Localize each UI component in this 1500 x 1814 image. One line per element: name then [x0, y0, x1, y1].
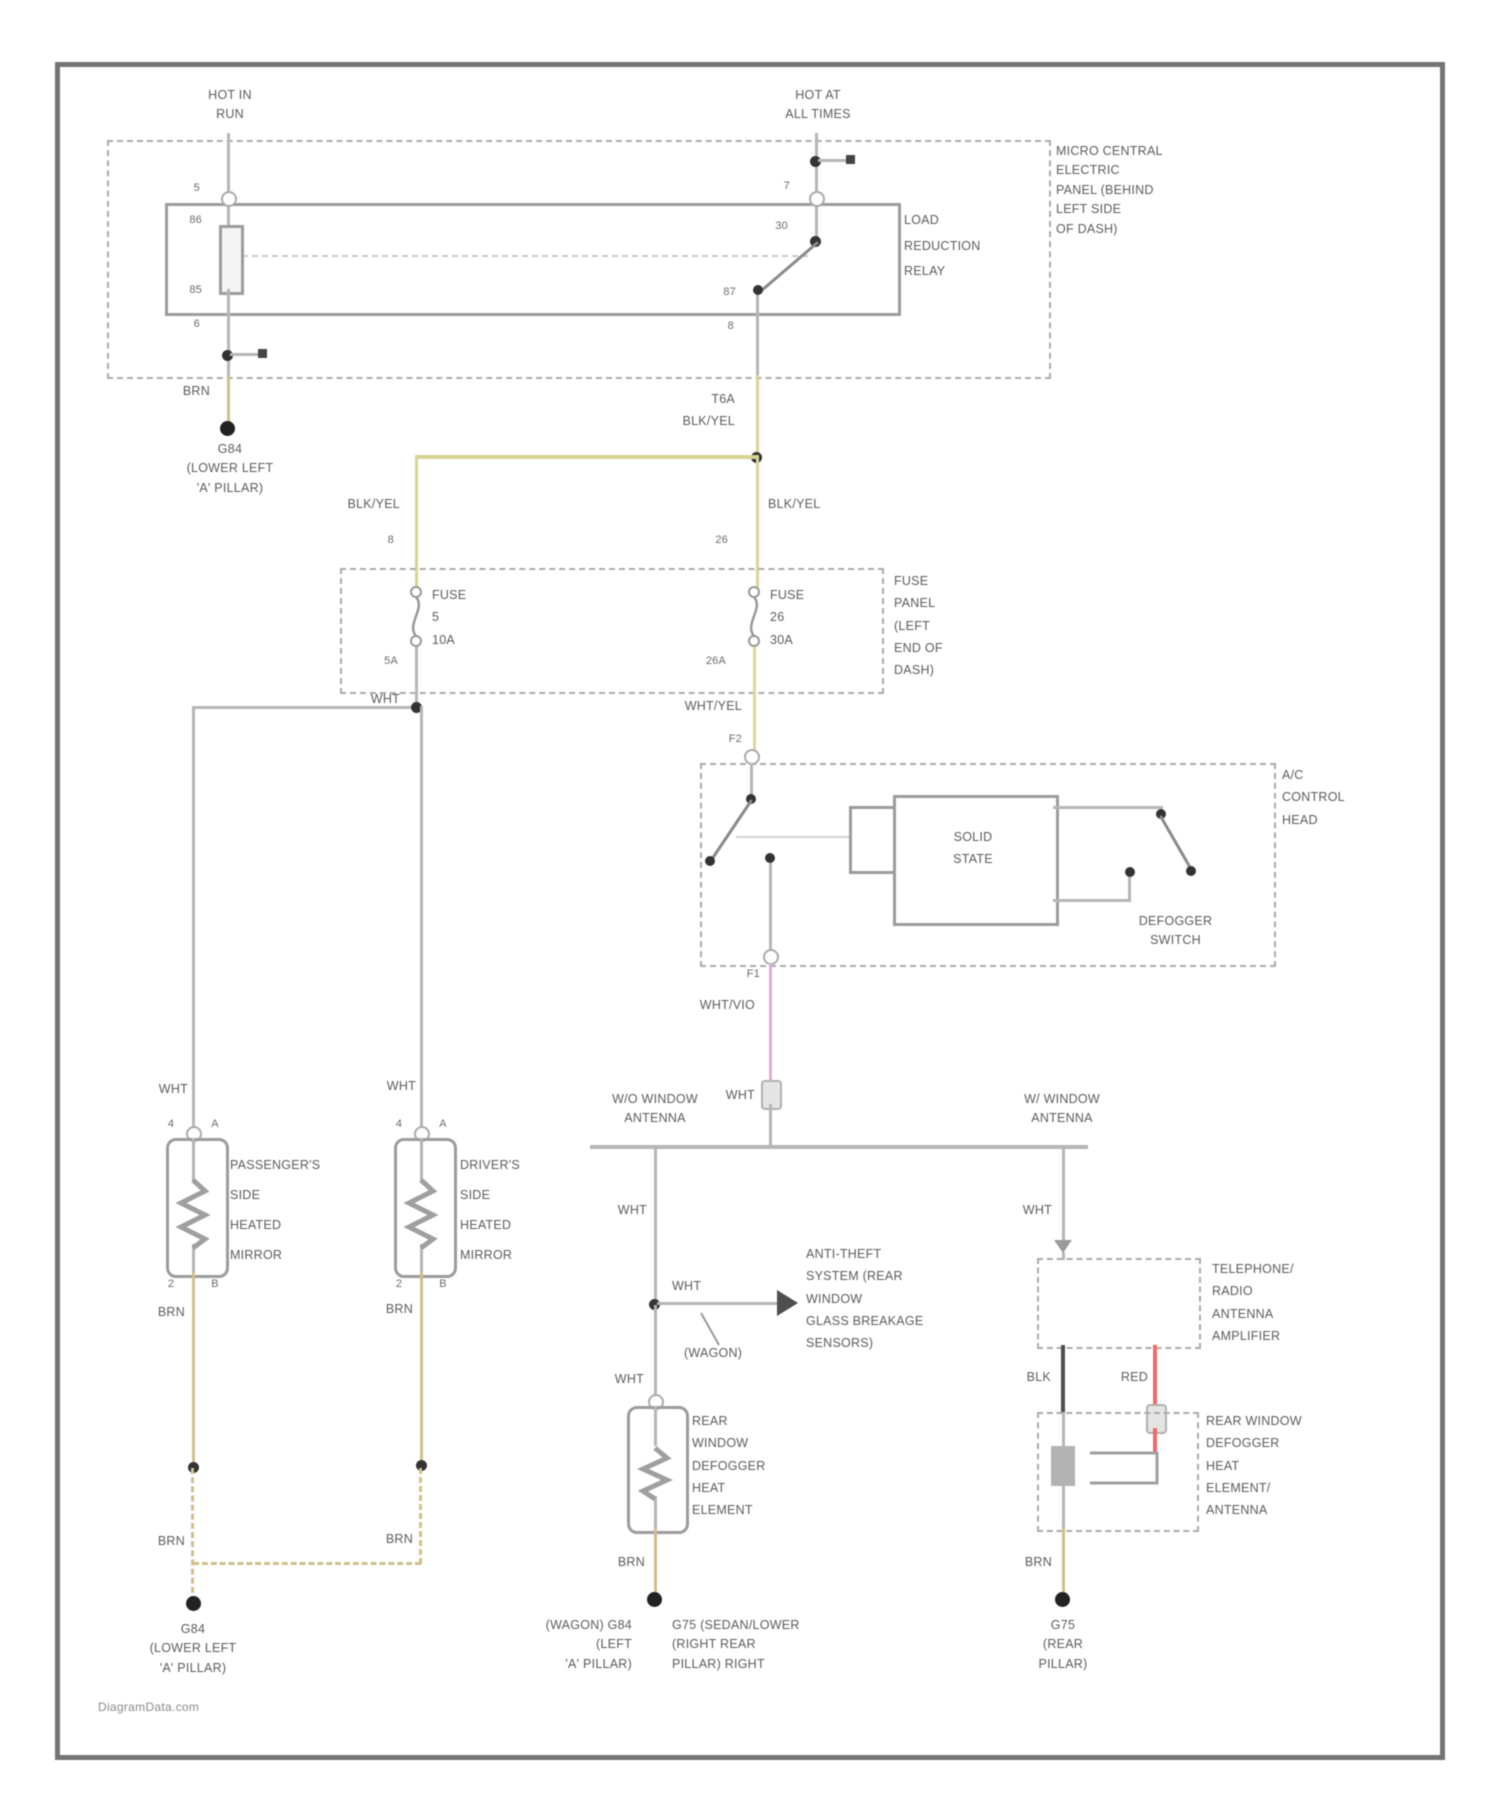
pin-contact-top: 30 — [752, 220, 788, 232]
ground-label-bottom-left: G84 (LOWER LEFT 'A' PILLAR) — [118, 1620, 268, 1678]
ground-dot-bottom-left — [186, 1596, 201, 1611]
micro-central-electric-panel-label: MICRO CENTRAL ELECTRIC PANEL (BEHIND LEF… — [1056, 142, 1226, 239]
variant-note-label: (WAGON) — [684, 1344, 779, 1363]
wire-blkyel-horizontal — [417, 455, 759, 459]
ac-control-head-label: A/C CONTROL HEAD — [1282, 764, 1402, 831]
wire-label-blkyel-left: BLK/YEL — [280, 495, 400, 514]
wire-pm-top — [192, 1138, 195, 1182]
mirror-pin-pr: A — [206, 1118, 224, 1130]
ground-label-center-left: (WAGON) G84 (LEFT 'A' PILLAR) — [470, 1616, 632, 1674]
mirror-pin-pbr: B — [206, 1278, 224, 1290]
ground-dot-center — [647, 1592, 662, 1607]
wire-label-wht-pm: WHT — [138, 1080, 188, 1099]
option-with-antenna-label: W/ WINDOW ANTENNA — [992, 1090, 1132, 1129]
defogger-switch-feed-line — [1053, 806, 1163, 809]
feed-hot-in-run: HOT IN RUN — [160, 86, 300, 125]
wire-brn-element — [654, 1528, 657, 1596]
wire-label-wht-r1: WHT — [1000, 1201, 1052, 1220]
stub-left — [230, 353, 260, 356]
fuse-panel-label: FUSE PANEL (LEFT END OF DASH) — [894, 570, 994, 681]
element-antenna-label: REAR WINDOW DEFOGGER HEAT ELEMENT/ ANTEN… — [1206, 1410, 1366, 1521]
stub-left-terminal — [258, 349, 267, 358]
wire-red — [1153, 1345, 1157, 1411]
wire-relay-coil-out — [227, 289, 230, 377]
stub-right — [818, 159, 848, 162]
ac-switch-control-link — [736, 836, 849, 838]
fuse-5-label: FUSE 5 10A — [432, 584, 502, 651]
wire-dm-top — [420, 1138, 423, 1182]
ground-label-top-left: G84 (LOWER LEFT 'A' PILLAR) — [155, 440, 305, 498]
wire-wht-passenger-mirror — [192, 706, 195, 1140]
wire-wht-mirror-bus — [193, 706, 421, 709]
fuse-26-label: FUSE 26 30A — [770, 584, 840, 651]
feed-hot-at-all-times: HOT AT ALL TIMES — [748, 86, 888, 125]
wire-element-top — [654, 1406, 657, 1446]
wire-wht-fuse5-out — [415, 645, 418, 709]
defogger-switch-return-h — [1053, 899, 1131, 902]
solid-state-connector-box — [849, 806, 899, 874]
driver-mirror-box — [394, 1138, 457, 1278]
wire-ac-output — [769, 858, 772, 963]
wire-label-wht-l2: WHT — [592, 1370, 644, 1389]
mirror-pin-dbl: 2 — [390, 1278, 408, 1290]
wire-antitheft-branch — [657, 1302, 777, 1305]
ground-dot-top-left — [220, 421, 235, 436]
stub-right-terminal — [846, 155, 855, 164]
option-without-antenna-label: W/O WINDOW ANTENNA — [585, 1090, 725, 1129]
wire-dm-bottom — [420, 1244, 423, 1274]
wire-label-whtyel: WHT/YEL — [620, 697, 742, 716]
wiring-diagram-page: HOT IN RUN HOT AT ALL TIMES MICRO CENTRA… — [0, 0, 1500, 1814]
wire-label-brn-pm: BRN — [135, 1303, 185, 1322]
fuse-panel-pin-top-right: 26 — [688, 534, 728, 546]
passenger-mirror-label: PASSENGER'S SIDE HEATED MIRROR — [230, 1150, 360, 1270]
wire-relay-output — [756, 292, 759, 377]
wire-brn-dashed-link — [193, 1562, 421, 1565]
fuse-panel-pin-top-left: 8 — [360, 534, 394, 546]
wire-blk — [1061, 1345, 1065, 1412]
fuse-panel-pin-bottom-right: 26A — [668, 655, 726, 667]
wire-brn-dashed-dm — [419, 1468, 422, 1564]
relay-coil-symbol — [219, 225, 244, 295]
ground-label-rear: G75 (REAR PILLAR) — [995, 1616, 1131, 1674]
connector-relay-right-top — [809, 191, 825, 207]
mirror-pin-dr: A — [434, 1118, 452, 1130]
antitheft-arrow — [777, 1290, 798, 1316]
wire-brn-rear — [1062, 1528, 1065, 1596]
mirror-pin-pl: 4 — [162, 1118, 180, 1130]
pin-ext-bottom-right: 8 — [700, 320, 734, 332]
wire-hot-in-run — [227, 133, 230, 225]
connector-relay-left-top — [221, 191, 237, 207]
load-reduction-relay-label: LOAD REDUCTION RELAY — [904, 208, 1044, 285]
ac-pin-in: F2 — [698, 733, 742, 745]
pin-ext-bottom-left: 6 — [168, 318, 200, 330]
wire-element-antenna-bottom — [1062, 1486, 1065, 1528]
ac-pin-out: F1 — [716, 968, 760, 980]
watermark: DiagramData.com — [98, 1700, 199, 1714]
antenna-option-bus — [590, 1145, 1088, 1149]
ground-dot-rear — [1055, 1592, 1070, 1607]
pin-ext-top-right: 7 — [756, 180, 790, 192]
relay-coil-contact-link — [242, 255, 808, 257]
rear-defogger-element-label: REAR WINDOW DEFOGGER HEAT ELEMENT — [692, 1410, 812, 1521]
mirror-pin-pbl: 2 — [162, 1278, 180, 1290]
driver-mirror-label: DRIVER'S SIDE HEATED MIRROR — [460, 1150, 580, 1270]
pin-ext-top-left: 5 — [168, 182, 200, 194]
wire-wht-to-element — [654, 1305, 657, 1402]
pin-coil-top: 86 — [164, 214, 202, 226]
wire-hot-at-all-times — [815, 133, 818, 243]
wire-whtyel — [753, 645, 756, 765]
wire-label-brn-element: BRN — [595, 1553, 645, 1572]
wire-wht-feed — [769, 1104, 772, 1148]
mirror-pin-dbr: B — [434, 1278, 452, 1290]
wire-pm-bottom — [192, 1244, 195, 1274]
wire-label-brn-dm: BRN — [363, 1300, 413, 1319]
wire-wht-right-drop — [1062, 1148, 1065, 1240]
wire-brn-dashed-pm — [191, 1468, 194, 1602]
wire-label-wht-branch: WHT — [672, 1277, 730, 1296]
wire-whtvio — [769, 963, 772, 1085]
wire-label-whtvio: WHT/VIO — [693, 996, 755, 1015]
solid-state-label: SOLID STATE — [893, 826, 1053, 871]
wire-label-brn-1: BRN — [150, 382, 210, 401]
defogger-switch-return-v — [1128, 874, 1131, 902]
mirror-pin-dl: 4 — [390, 1118, 408, 1130]
wire-label-wht-l1: WHT — [595, 1201, 647, 1220]
defogger-switch-label: DEFOGGER SWITCH — [1098, 912, 1253, 951]
wire-label-red: RED — [1102, 1368, 1148, 1387]
wire-label-blkyel-right: BLK/YEL — [768, 495, 888, 514]
wire-label-wht-dm: WHT — [366, 1077, 416, 1096]
wire-brn-pm — [192, 1272, 195, 1468]
wire-element-antenna-top — [1062, 1412, 1065, 1446]
ground-label-center-right: G75 (SEDAN/LOWER (RIGHT REAR PILLAR) RIG… — [672, 1616, 892, 1674]
rear-defogger-element-box — [627, 1406, 689, 1534]
relay-contact-top-dot — [810, 236, 821, 247]
wire-element-bottom — [654, 1496, 657, 1528]
wire-label-blk: BLK — [1003, 1368, 1051, 1387]
wire-label-blkyel-top: BLK/YEL — [613, 412, 735, 431]
wire-ac-switch-feed — [750, 763, 753, 800]
wire-brn-dm — [420, 1272, 423, 1468]
wire-label-t6a: T6A — [650, 390, 735, 409]
telephone-radio-amplifier-label: TELEPHONE/ RADIO ANTENNA AMPLIFIER — [1212, 1258, 1352, 1347]
pin-coil-bottom: 85 — [164, 284, 202, 296]
wire-wht-left-drop — [654, 1148, 657, 1305]
fuse-panel-pin-bottom-left: 5A — [348, 655, 398, 667]
antitheft-label: ANTI-THEFT SYSTEM (REAR WINDOW GLASS BRE… — [806, 1243, 966, 1354]
wire-label-brn-dm2: BRN — [363, 1530, 413, 1549]
telephone-radio-amplifier-box — [1037, 1258, 1201, 1349]
wire-red-inside — [1153, 1428, 1157, 1452]
load-reduction-relay-box — [165, 203, 901, 316]
wire-blkyel-vertical — [756, 375, 759, 458]
wire-label-brn-rear: BRN — [1006, 1553, 1052, 1572]
wire-wht-driver-mirror — [420, 706, 423, 1140]
passenger-mirror-box — [166, 1138, 229, 1278]
wire-label-brn-pm2: BRN — [135, 1532, 185, 1551]
pin-contact-bottom: 87 — [698, 286, 736, 298]
